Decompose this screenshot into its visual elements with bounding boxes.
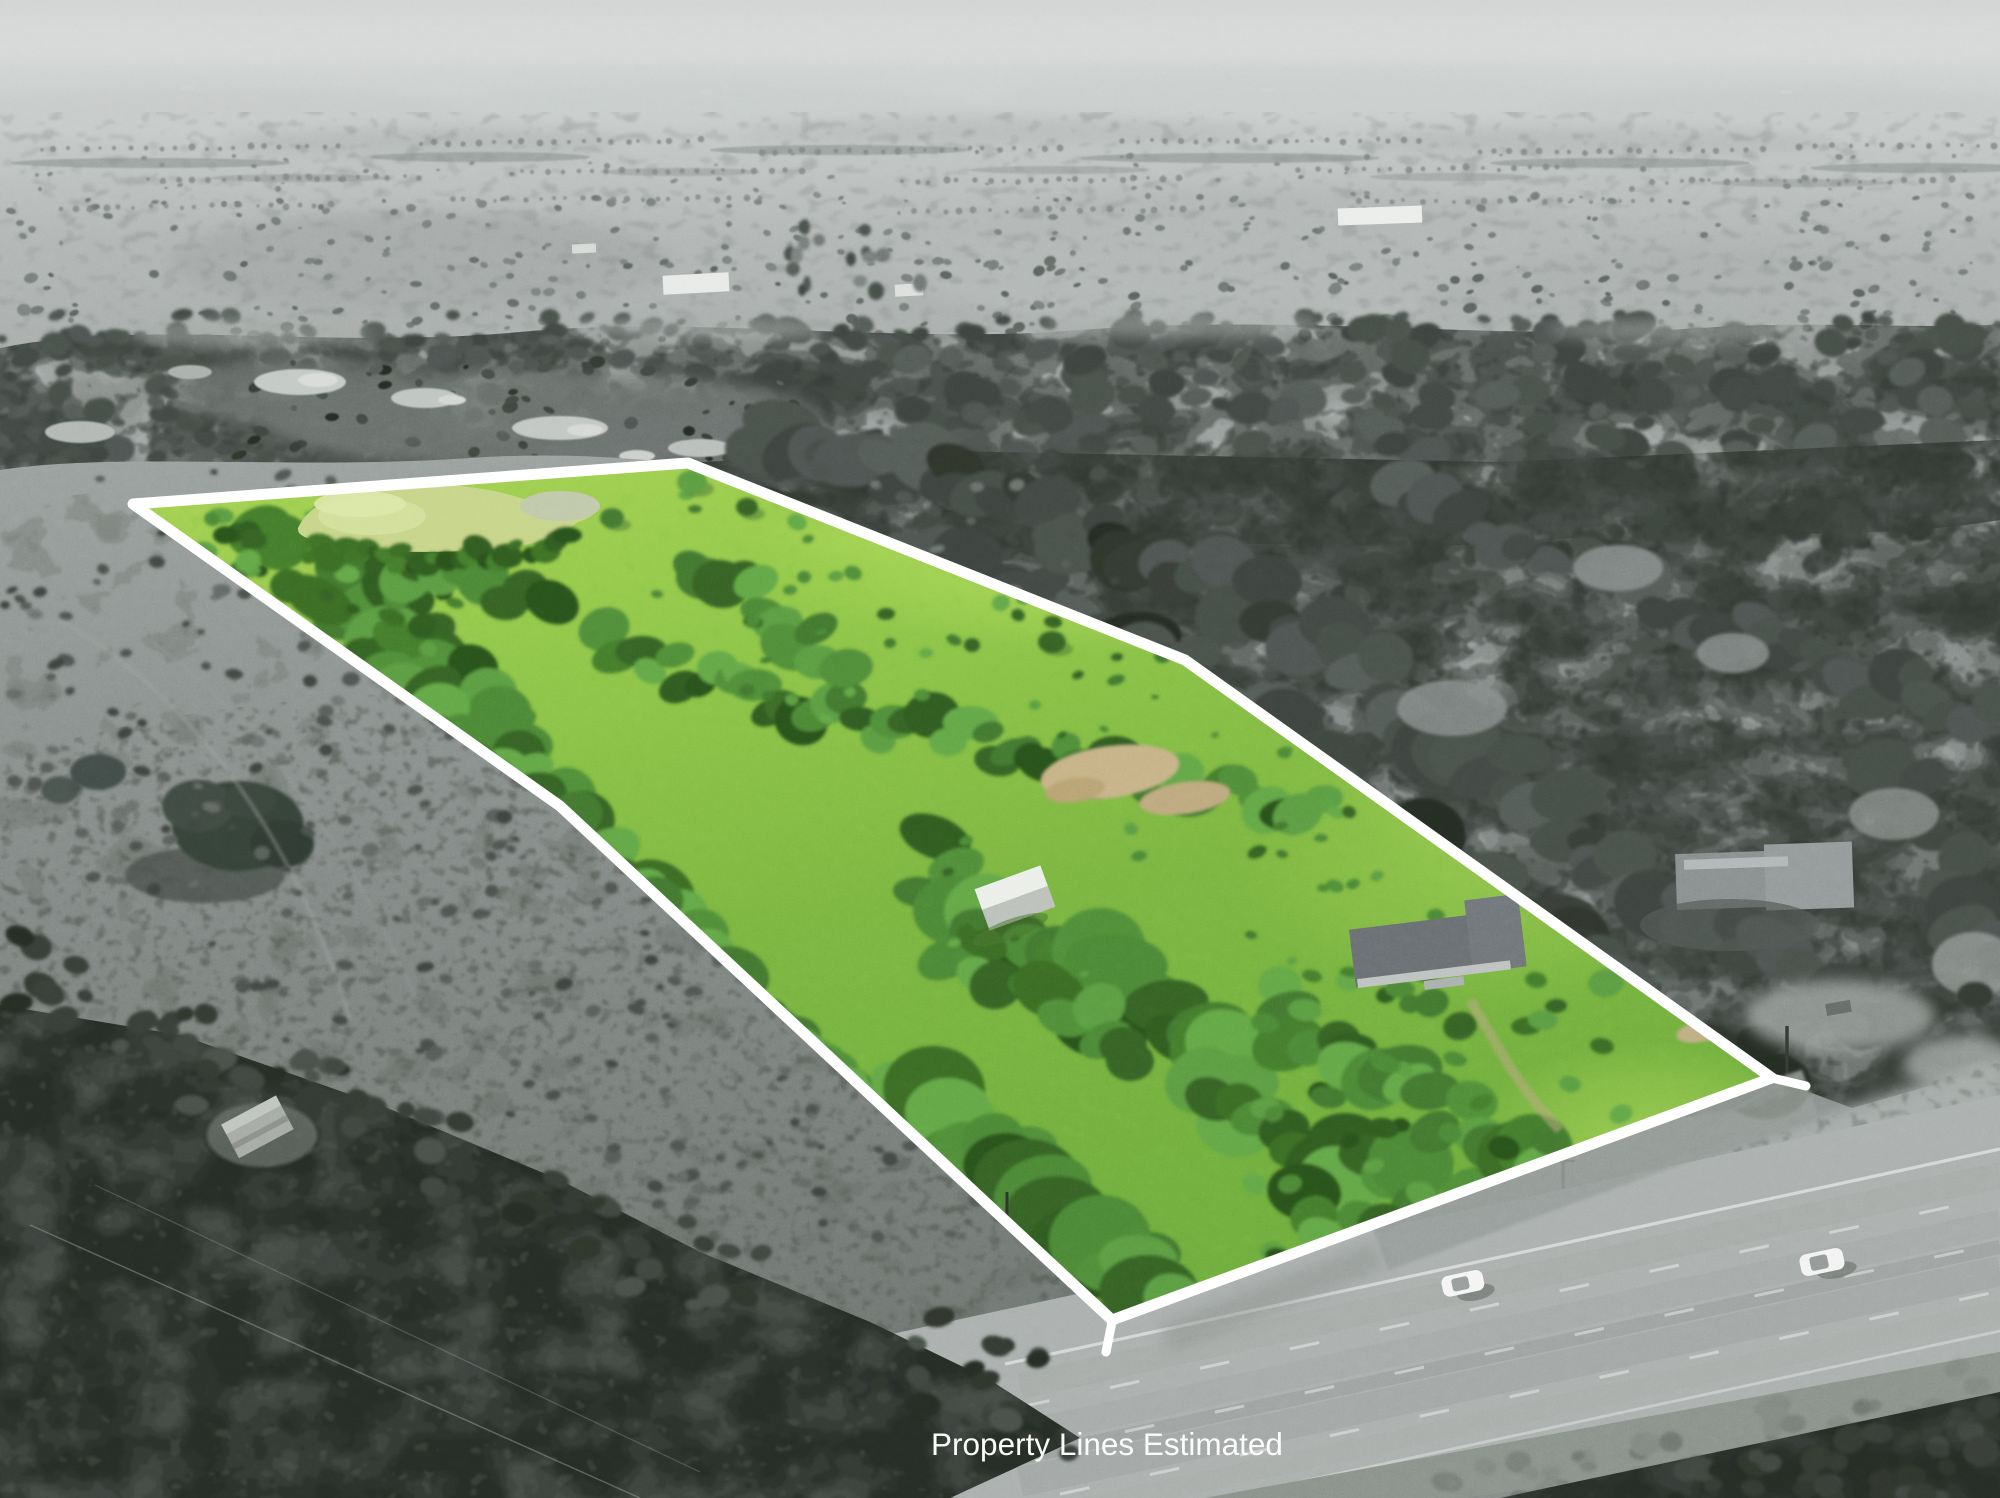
svg-text:Property Lines Estimated: Property Lines Estimated (931, 1426, 1283, 1462)
